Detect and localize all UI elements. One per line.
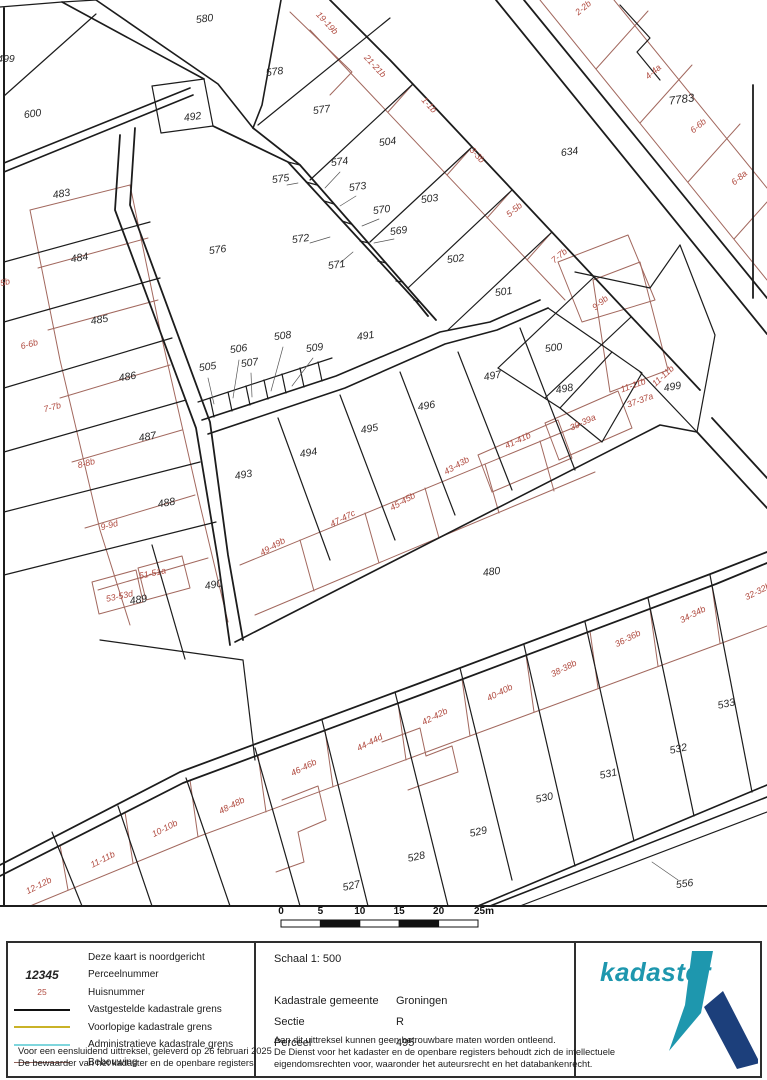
house-number: 44-44d <box>355 731 385 753</box>
legend-line-sample <box>14 1026 70 1028</box>
cadastral-boundary-line <box>4 278 160 322</box>
parcel-number: 580 <box>195 12 214 26</box>
house-number: 9-9d <box>99 518 120 533</box>
parcel-number: 600 <box>23 107 42 121</box>
parcel-number: 495 <box>360 422 379 437</box>
cadastral-boundary-line <box>130 128 243 640</box>
house-number-sample: 25 <box>8 987 76 997</box>
parcel-number-sample: 12345 <box>8 968 76 982</box>
parcel-number: 484 <box>70 251 89 266</box>
building-outline <box>290 12 352 95</box>
house-number: 6-6b <box>688 116 708 135</box>
info-key: Kadastrale gemeente <box>274 991 396 1012</box>
parcel-number: 505 <box>198 360 217 374</box>
label-leader-line <box>310 237 330 243</box>
parcel-number: 483 <box>52 187 71 202</box>
house-number: 38-38b <box>549 658 578 679</box>
scalebar-tick-label: 5 <box>318 906 324 917</box>
building-outline <box>300 540 314 591</box>
scalebar-tick-label: 15 <box>394 906 406 917</box>
house-number: 45-45b <box>388 490 417 512</box>
scalebar-tick-label: 20 <box>433 906 445 917</box>
cadastral-boundary-line <box>152 79 213 133</box>
cadastral-boundary-line <box>478 785 767 906</box>
parcel-number: 491 <box>356 329 375 343</box>
cadastral-boundary-line <box>100 640 255 760</box>
cadastral-boundary-line <box>448 232 552 330</box>
label-leader-line <box>325 172 340 188</box>
parcel-number: 496 <box>417 399 436 414</box>
info-value: Groningen <box>396 991 447 1012</box>
legend-item-label: Voorlopige kadastrale grens <box>76 1022 212 1033</box>
parcel-number: 533 <box>717 696 737 711</box>
scale-text: Schaal 1: 500 <box>274 953 341 965</box>
cadastral-map: 5804996005785774926347783504574575573570… <box>0 0 767 940</box>
house-number: 19-19b <box>314 10 340 37</box>
parcel-number: 532 <box>669 741 689 756</box>
parcel-number: 499 <box>663 380 682 395</box>
info-row: SectieR <box>274 1012 447 1033</box>
scalebar-segment <box>320 920 359 927</box>
parcel-number: 571 <box>327 258 346 272</box>
legend-item-label: Vastgestelde kadastrale grens <box>76 1004 222 1015</box>
building-outline <box>485 464 499 513</box>
scalebar-segment <box>399 920 438 927</box>
building-outline <box>30 626 767 906</box>
house-number: 7-7b <box>42 400 62 414</box>
cadastral-map-canvas: 5804996005785774926347783504574575573570… <box>0 0 767 940</box>
house-number: 5-5b <box>504 200 524 219</box>
parcel-number-label: Perceelnummer <box>76 969 159 980</box>
house-number: 49-49b <box>258 535 287 557</box>
house-number: 6-6b <box>19 337 39 351</box>
label-leader-line <box>374 239 394 243</box>
info-row: Kadastrale gemeenteGroningen <box>274 991 447 1012</box>
cadastral-boundary-line <box>460 668 512 880</box>
parcel-number: 529 <box>469 824 489 839</box>
house-number: 6-8a <box>729 168 749 187</box>
info-key: Sectie <box>274 1012 396 1033</box>
parcel-number: 504 <box>378 135 397 149</box>
parcel-number: 488 <box>157 496 176 511</box>
building-outline <box>734 202 767 239</box>
kadaster-logo: kadaster <box>580 943 758 1076</box>
house-number-label: Huisnummer <box>76 987 145 998</box>
map-footer: Deze kaart is noordgericht 12345 Perceel… <box>6 941 762 1078</box>
house-number: 3-3b <box>468 145 487 165</box>
parcel-number: 501 <box>494 285 513 299</box>
parcel-number: 576 <box>208 243 227 257</box>
cadastral-boundary-line <box>186 778 230 906</box>
house-number: 10-10b <box>150 818 179 839</box>
cadastral-boundary-line <box>712 418 767 478</box>
house-number: 2-2b <box>572 0 593 18</box>
parcel-number: 527 <box>342 878 363 894</box>
legend-panel: Deze kaart is noordgericht 12345 Perceel… <box>8 943 254 1076</box>
cadastral-boundary-line <box>520 812 767 906</box>
cadastral-boundary-line <box>648 598 694 816</box>
house-number: 46-46b <box>289 757 318 778</box>
parcel-number: 485 <box>90 313 109 328</box>
parcel-number: 574 <box>330 155 349 169</box>
house-number: 21-21b <box>362 52 389 80</box>
extract-info-panel: Schaal 1: 500 Kadastrale gemeenteGroning… <box>260 943 578 1076</box>
parcel-number: 497 <box>483 368 503 383</box>
parcel-number: 528 <box>407 849 427 864</box>
house-number: 47-47c <box>328 507 357 528</box>
parcel-number: 499 <box>0 53 15 65</box>
parcel-number: 507 <box>240 356 260 370</box>
cadastral-boundary-line <box>96 0 253 128</box>
building-outline <box>425 488 439 538</box>
cadastral-boundary-line <box>710 575 752 792</box>
house-number: 39-39a <box>568 412 597 433</box>
house-number: 48-48b <box>217 795 246 816</box>
building-outline <box>593 262 668 392</box>
parcel-number: 530 <box>535 790 555 805</box>
label-leader-line <box>362 219 379 226</box>
parcel-number: 556 <box>675 877 694 891</box>
parcel-number: 634 <box>560 145 579 159</box>
house-number: 42-42b <box>420 706 449 727</box>
cadastral-boundary-line <box>152 545 185 659</box>
parcel-number: 506 <box>229 342 248 356</box>
cadastral-boundary-line <box>4 14 96 96</box>
house-number: 32-32b <box>743 581 767 602</box>
building-outline <box>596 11 648 69</box>
house-number: 11-11b <box>619 376 647 394</box>
scalebar-tick-label: 25m <box>474 906 494 917</box>
parcel-number: 494 <box>299 446 318 461</box>
parcel-number: 575 <box>271 172 290 186</box>
logo-mark-dark-shape <box>704 991 758 1069</box>
cadastral-boundary-line <box>490 797 767 906</box>
disclaimer-text: Aan dit uittreksel kunnen geen betrouwba… <box>274 1034 615 1070</box>
scalebar-segment <box>439 920 478 927</box>
house-number: 7-7b <box>549 246 569 265</box>
house-number: 36-36b <box>613 628 642 649</box>
cadastral-boundary-line <box>4 400 186 452</box>
label-leader-line <box>340 196 356 206</box>
house-number: 8-8b <box>76 456 96 470</box>
parcel-number: 493 <box>234 468 253 483</box>
scalebar-tick-label: 0 <box>278 906 284 917</box>
building-outline <box>382 728 458 790</box>
legend-item: Vastgestelde kadastrale grens <box>8 1002 254 1019</box>
building-outline <box>60 365 170 398</box>
info-value: R <box>396 1012 404 1033</box>
legend-footnotes: Voor een eensluidend uittreksel, gelever… <box>18 1045 272 1069</box>
parcel-number: 573 <box>348 180 367 194</box>
disclaimer-line-3: eigendomsrechten voor, waaronder het aut… <box>274 1058 615 1070</box>
label-leader-line <box>652 862 678 880</box>
parcel-number: 486 <box>118 370 137 385</box>
house-number: 11-11b <box>89 849 117 870</box>
parcel-number: 508 <box>273 329 292 343</box>
parcel-number: 487 <box>138 429 158 444</box>
cadastral-boundary-line <box>228 392 232 411</box>
cadastral-boundary-line <box>198 358 332 402</box>
cadastral-boundary-line <box>213 126 428 316</box>
disclaimer-line-2: De Dienst voor het kadaster en de openba… <box>274 1046 615 1058</box>
label-leader-line <box>251 373 252 397</box>
parcel-number: 502 <box>446 252 465 266</box>
building-outline <box>540 0 767 280</box>
house-number: 4-4a <box>643 62 663 81</box>
label-leader-line <box>233 360 239 398</box>
building-outline <box>365 513 379 563</box>
label-leader-line <box>271 347 283 391</box>
house-number: 43-43b <box>442 454 471 476</box>
cadastral-boundary-line <box>4 95 193 172</box>
cadastral-boundary-line <box>118 806 152 906</box>
parcel-number: 7783 <box>668 92 696 108</box>
cadastral-boundary-line <box>282 374 286 393</box>
cadastral-boundary-line <box>246 386 250 405</box>
house-number: 51-51a <box>138 565 167 580</box>
disclaimer-line-1: Aan dit uittreksel kunnen geen betrouwba… <box>274 1034 615 1046</box>
cadastral-boundary-line <box>697 432 767 508</box>
cadastral-boundary-line <box>264 380 268 399</box>
cadastral-boundary-line <box>253 0 281 128</box>
legend-line-sample <box>14 1009 70 1011</box>
parcel-number: 572 <box>291 232 310 246</box>
building-outline <box>30 210 130 625</box>
cadastral-boundary-line <box>310 84 413 180</box>
house-number: 40-40b <box>485 682 514 703</box>
parcel-number: 577 <box>312 103 332 117</box>
scalebar-segment <box>281 920 320 927</box>
kadaster-logo-text: kadaster <box>600 957 711 988</box>
house-number: 12-12b <box>24 875 53 896</box>
parcel-number: 492 <box>183 110 202 124</box>
scalebar-segment <box>360 920 399 927</box>
cadastral-boundary-line <box>318 362 322 381</box>
parcel-number: 498 <box>555 382 574 397</box>
house-number: 41-41b <box>503 430 532 451</box>
cadastral-boundary-line <box>395 692 448 906</box>
parcel-number: 500 <box>544 341 563 355</box>
parcel-number: 531 <box>599 766 619 781</box>
north-note: Deze kaart is noordgericht <box>76 952 205 963</box>
parcel-number: 569 <box>389 224 408 238</box>
footnote-delivery: Voor een eensluidend uittreksel, gelever… <box>18 1045 272 1057</box>
legend-item: Voorlopige kadastrale grens <box>8 1019 254 1036</box>
cadastral-boundary-line <box>0 0 96 7</box>
parcel-number: 578 <box>265 65 284 79</box>
parcel-number: 570 <box>372 203 391 217</box>
building-outline <box>462 679 470 736</box>
cadastral-boundary-line <box>4 88 190 163</box>
house-number: 9-9b <box>590 293 610 312</box>
parcel-number: 509 <box>305 341 324 355</box>
cadastral-boundary-line <box>524 645 575 866</box>
parcel-number: 503 <box>420 192 439 206</box>
house-number: 34-34b <box>678 604 707 625</box>
cadastral-boundary-line <box>585 622 634 841</box>
cadastral-boundary-line <box>62 2 204 79</box>
house-number: 1-1b <box>420 95 439 115</box>
cadastral-boundary-line <box>330 0 700 390</box>
parcel-number: 480 <box>482 565 501 579</box>
footnote-keeper: De bewaarder van het kadaster en de open… <box>18 1057 272 1069</box>
house-number: 5-5b <box>0 276 11 290</box>
scalebar-tick-label: 10 <box>354 906 366 917</box>
